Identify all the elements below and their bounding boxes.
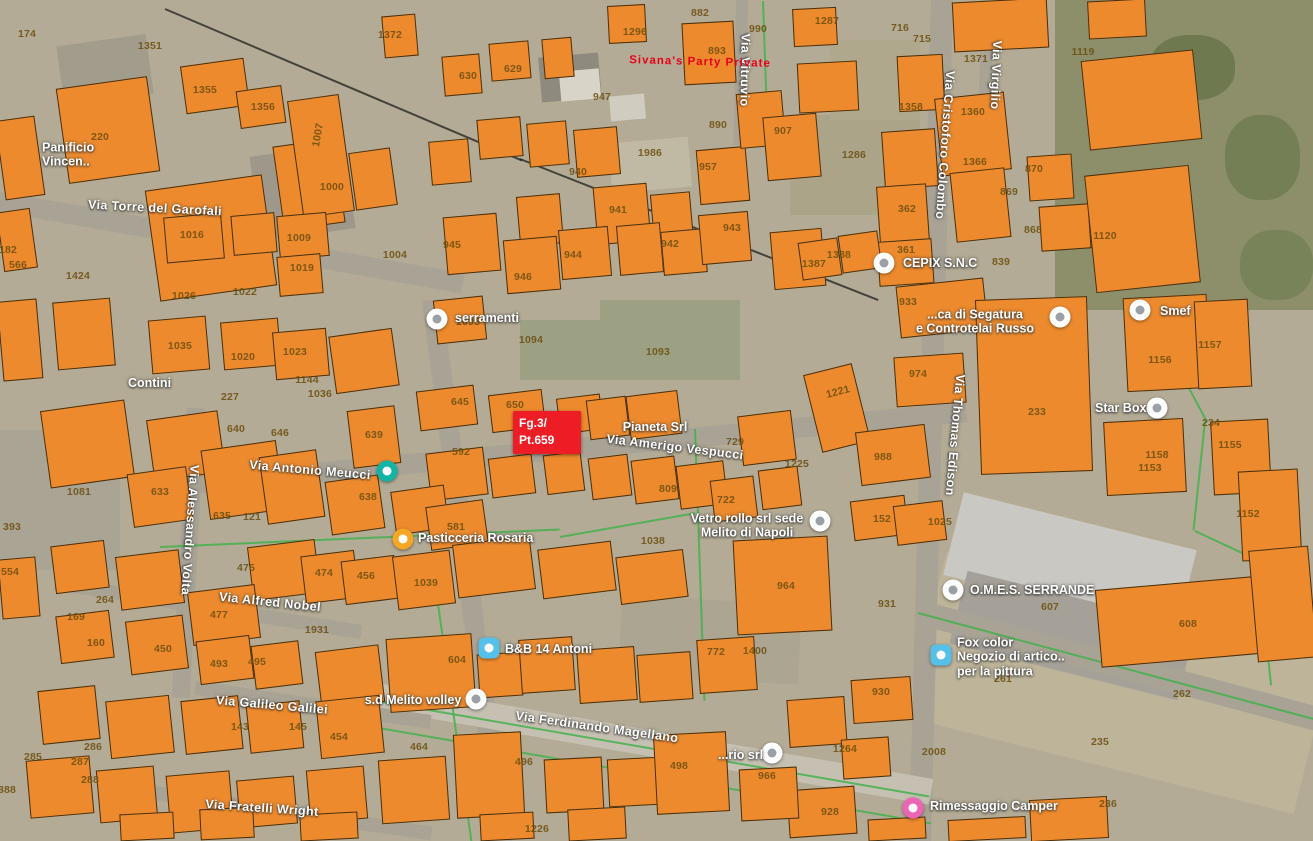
building-parcel bbox=[1026, 153, 1074, 201]
parcel-number: 715 bbox=[913, 33, 931, 45]
pin-glyph bbox=[433, 315, 442, 324]
building-parcel bbox=[0, 116, 45, 201]
building-parcel bbox=[488, 453, 537, 498]
parcel-number: 182 bbox=[0, 244, 17, 256]
parcel-number: 966 bbox=[758, 770, 776, 782]
parcel-number: 1296 bbox=[623, 26, 647, 38]
parcel-number: 882 bbox=[691, 7, 709, 19]
parcel-number: 1152 bbox=[1236, 508, 1260, 520]
parcel-number: 495 bbox=[248, 656, 266, 668]
pin-glyph bbox=[1153, 404, 1162, 413]
building-parcel bbox=[855, 424, 931, 486]
parcel-number: 893 bbox=[708, 45, 726, 57]
parcel-number: 554 bbox=[1, 566, 19, 578]
parcel-number: 890 bbox=[709, 119, 727, 131]
parcel-number: 1035 bbox=[168, 340, 192, 352]
parcel-number: 1153 bbox=[1138, 462, 1162, 474]
building-parcel bbox=[696, 146, 751, 205]
terrain-patch bbox=[1240, 230, 1313, 300]
pin-glyph bbox=[485, 644, 494, 653]
terrain-patch bbox=[520, 320, 610, 380]
parcel-number: 1039 bbox=[414, 577, 438, 589]
building-parcel bbox=[119, 812, 174, 841]
building-parcel bbox=[1095, 576, 1259, 667]
cadastral-map-canvas[interactable]: Sivana's Party Private Fg.3/ Pt.659 1741… bbox=[0, 0, 1313, 841]
building-parcel bbox=[537, 541, 617, 600]
poi-label-line: Fox color bbox=[957, 635, 1065, 649]
parcel-number: 1358 bbox=[899, 101, 923, 113]
building-parcel bbox=[949, 167, 1011, 242]
parcel-number: 943 bbox=[723, 222, 741, 234]
parcel-number: 143 bbox=[231, 721, 249, 733]
parcel-number: 493 bbox=[210, 658, 228, 670]
poi-pin-white-icon[interactable] bbox=[874, 253, 895, 274]
parcel-number: 988 bbox=[874, 451, 892, 463]
parcel-number: 477 bbox=[210, 609, 228, 621]
marker-parcel-line: Pt.659 bbox=[519, 432, 575, 449]
poi-label[interactable]: Pasticceria Rosaria bbox=[418, 531, 533, 545]
parcel-number: 287 bbox=[71, 756, 89, 768]
parcel-number: 233 bbox=[1028, 406, 1046, 418]
poi-label-line: Pasticceria Rosaria bbox=[418, 531, 533, 545]
selected-parcel-marker[interactable]: Fg.3/ Pt.659 bbox=[513, 411, 581, 454]
poi-label-line: per la pittura bbox=[957, 664, 1065, 678]
parcel-number: 629 bbox=[504, 63, 522, 75]
poi-label-line: ...ca di Segatura bbox=[916, 308, 1034, 322]
parcel-number: 1387 bbox=[802, 258, 826, 270]
parcel-number: 1009 bbox=[287, 232, 311, 244]
parcel-number: 1366 bbox=[963, 156, 987, 168]
parcel-number: 235 bbox=[1091, 736, 1109, 748]
building-parcel bbox=[230, 212, 277, 256]
poi-label[interactable]: Rimessaggio Camper bbox=[930, 799, 1058, 813]
parcel-number: 234 bbox=[1202, 417, 1220, 429]
parcel-number: 1371 bbox=[964, 53, 988, 65]
parcel-number: 1026 bbox=[172, 290, 196, 302]
parcel-number: 1093 bbox=[646, 346, 670, 358]
parcel-number: 388 bbox=[0, 784, 16, 796]
poi-label-line: O.M.E.S. SERRANDE bbox=[970, 583, 1094, 597]
building-parcel bbox=[105, 695, 175, 759]
parcel-number: 946 bbox=[514, 271, 532, 283]
pin-glyph bbox=[880, 259, 889, 268]
building-parcel bbox=[348, 147, 398, 210]
parcel-number: 361 bbox=[897, 244, 915, 256]
parcel-number: 464 bbox=[410, 741, 428, 753]
building-parcel bbox=[786, 696, 847, 748]
poi-label-line: Smef bbox=[1160, 304, 1191, 318]
parcel-number: 1023 bbox=[283, 346, 307, 358]
building-parcel bbox=[758, 466, 803, 511]
poi-pin-white-icon[interactable] bbox=[1130, 300, 1151, 321]
building-parcel bbox=[37, 685, 100, 745]
parcel-number: 1120 bbox=[1093, 230, 1117, 242]
poi-label[interactable]: Fox colorNegozio di artico..per la pittu… bbox=[957, 635, 1065, 678]
poi-label-line: e Controtelai Russo bbox=[916, 322, 1034, 336]
poi-label[interactable]: serramenti bbox=[455, 311, 519, 325]
parcel-number: 288 bbox=[81, 774, 99, 786]
poi-label[interactable]: CEPIX S.N.C bbox=[903, 256, 977, 270]
poi-label-line: Negozio di artico.. bbox=[957, 650, 1065, 664]
poi-label-line: Panificio bbox=[42, 141, 94, 155]
parcel-number: 1355 bbox=[193, 84, 217, 96]
building-parcel bbox=[797, 60, 860, 113]
parcel-number: 496 bbox=[515, 756, 533, 768]
parcel-number: 964 bbox=[777, 580, 795, 592]
parcel-number: 635 bbox=[213, 510, 231, 522]
building-parcel bbox=[453, 731, 525, 818]
parcel-number: 1025 bbox=[928, 516, 952, 528]
poi-pin-blue-icon[interactable] bbox=[931, 645, 952, 666]
parcel-number: 1000 bbox=[320, 181, 344, 193]
parcel-number: 236 bbox=[1099, 798, 1117, 810]
parcel-number: 1144 bbox=[295, 374, 319, 386]
parcel-number: 1388 bbox=[827, 249, 851, 261]
parcel-number: 604 bbox=[448, 654, 466, 666]
poi-label[interactable]: B&B 14 Antoni bbox=[505, 642, 592, 656]
parcel-number: 152 bbox=[873, 513, 891, 525]
building-parcel bbox=[698, 211, 752, 265]
parcel-number: 630 bbox=[459, 70, 477, 82]
parcel-number: 1360 bbox=[961, 106, 985, 118]
parcel-number: 1022 bbox=[233, 286, 257, 298]
parcel-number: 454 bbox=[330, 731, 348, 743]
building-parcel bbox=[503, 236, 562, 295]
parcel-number: 592 bbox=[452, 446, 470, 458]
parcel-number: 1004 bbox=[383, 249, 407, 261]
parcel-number: 809 bbox=[659, 483, 677, 495]
building-parcel bbox=[416, 385, 478, 432]
parcel-number: 974 bbox=[909, 368, 927, 380]
poi-label-line: Rimessaggio Camper bbox=[930, 799, 1058, 813]
parcel-number: 716 bbox=[891, 22, 909, 34]
parcel-number: 169 bbox=[67, 611, 85, 623]
parcel-number: 722 bbox=[717, 494, 735, 506]
poi-label[interactable]: Vetro rollo srl sedeMelito di Napoli bbox=[691, 512, 804, 541]
parcel-number: 1081 bbox=[67, 486, 91, 498]
parcel-number: 1286 bbox=[842, 149, 866, 161]
poi-label-line: CEPIX S.N.C bbox=[903, 256, 977, 270]
building-parcel bbox=[615, 549, 688, 605]
building-parcel bbox=[544, 757, 605, 814]
parcel-number: 1157 bbox=[1198, 339, 1222, 351]
parcel-number: 1094 bbox=[519, 334, 543, 346]
parcel-number: 566 bbox=[9, 259, 27, 271]
poi-pin-white-icon[interactable] bbox=[1050, 307, 1071, 328]
building-parcel bbox=[616, 222, 664, 276]
parcel-number: 1264 bbox=[833, 743, 857, 755]
building-parcel bbox=[543, 451, 586, 495]
boundary-line-green bbox=[1193, 421, 1206, 531]
poi-pin-white-icon[interactable] bbox=[810, 511, 831, 532]
poi-label[interactable]: s.d Melito volley bbox=[365, 693, 462, 707]
parcel-number: 638 bbox=[359, 491, 377, 503]
building-parcel bbox=[567, 807, 627, 841]
building-parcel bbox=[526, 120, 570, 167]
poi-label-line: Contini bbox=[128, 376, 171, 390]
parcel-number: 1038 bbox=[641, 535, 665, 547]
parcel-number: 1119 bbox=[1072, 46, 1095, 58]
poi-label-line: Pianeta Srl bbox=[623, 420, 688, 434]
building-parcel bbox=[588, 454, 633, 501]
poi-label[interactable]: Pianeta Srl bbox=[623, 420, 688, 434]
building-parcel bbox=[851, 676, 914, 724]
terrain-patch bbox=[609, 94, 646, 122]
parcel-number: 640 bbox=[227, 423, 245, 435]
street-label: Via Virgilio bbox=[988, 40, 1004, 109]
building-parcel bbox=[762, 113, 821, 181]
poi-label[interactable]: Smef bbox=[1160, 304, 1191, 318]
parcel-number: 947 bbox=[593, 91, 611, 103]
building-parcel bbox=[325, 475, 386, 536]
poi-label[interactable]: ...ca di Segaturae Controtelai Russo bbox=[916, 308, 1034, 337]
parcel-number: 1356 bbox=[251, 101, 275, 113]
pin-glyph bbox=[949, 586, 958, 595]
building-parcel bbox=[1038, 203, 1091, 251]
poi-label[interactable]: O.M.E.S. SERRANDE bbox=[970, 583, 1094, 597]
pin-glyph bbox=[472, 695, 481, 704]
parcel-number: 933 bbox=[899, 296, 917, 308]
parcel-number: 931 bbox=[878, 598, 896, 610]
poi-pin-blue-icon[interactable] bbox=[479, 638, 500, 659]
parcel-number: 121 bbox=[243, 511, 261, 523]
parcel-number: 1424 bbox=[66, 270, 90, 282]
poi-pin-white-icon[interactable] bbox=[466, 689, 487, 710]
building-parcel bbox=[867, 816, 926, 841]
building-parcel bbox=[276, 253, 323, 297]
pin-glyph bbox=[399, 535, 408, 544]
building-parcel bbox=[1081, 49, 1203, 150]
building-parcel bbox=[947, 816, 1026, 841]
poi-pin-orange-icon[interactable] bbox=[393, 529, 414, 550]
poi-label[interactable]: ...rio srl bbox=[718, 748, 763, 762]
pin-glyph bbox=[383, 467, 392, 476]
parcel-number: 1986 bbox=[638, 147, 662, 159]
parcel-number: 498 bbox=[670, 760, 688, 772]
building-parcel bbox=[50, 540, 109, 594]
building-parcel bbox=[52, 298, 116, 371]
parcel-number: 639 bbox=[365, 429, 383, 441]
parcel-number: 1226 bbox=[525, 823, 549, 835]
parcel-number: 868 bbox=[1024, 224, 1042, 236]
parcel-number: 607 bbox=[1041, 601, 1059, 613]
parcel-number: 1287 bbox=[815, 15, 839, 27]
parcel-number: 957 bbox=[699, 161, 717, 173]
parcel-number: 772 bbox=[707, 646, 725, 658]
parcel-number: 362 bbox=[898, 203, 916, 215]
parcel-number: 907 bbox=[774, 125, 792, 137]
poi-pin-white-icon[interactable] bbox=[1147, 398, 1168, 419]
parcel-number: 646 bbox=[271, 427, 289, 439]
parcel-number: 264 bbox=[96, 594, 114, 606]
parcel-number: 227 bbox=[221, 391, 239, 403]
parcel-number: 650 bbox=[506, 399, 524, 411]
building-parcel bbox=[630, 455, 679, 504]
building-parcel bbox=[328, 328, 399, 394]
parcel-number: 839 bbox=[992, 256, 1010, 268]
building-parcel bbox=[1248, 546, 1313, 663]
poi-pin-white-icon[interactable] bbox=[943, 580, 964, 601]
building-parcel bbox=[636, 651, 693, 703]
building-parcel bbox=[541, 37, 574, 79]
terrain-patch bbox=[600, 300, 740, 380]
poi-pin-white-icon[interactable] bbox=[762, 743, 783, 764]
parcel-number: 1019 bbox=[290, 262, 314, 274]
poi-label-line: serramenti bbox=[455, 311, 519, 325]
building-parcel bbox=[1087, 0, 1147, 39]
parcel-number: 285 bbox=[24, 751, 42, 763]
poi-label-line: Vetro rollo srl sede bbox=[691, 512, 804, 526]
parcel-number: 160 bbox=[87, 637, 105, 649]
parcel-number: 1225 bbox=[785, 458, 809, 470]
parcel-number: 456 bbox=[357, 570, 375, 582]
pin-glyph bbox=[909, 804, 918, 813]
parcel-number: 450 bbox=[154, 643, 172, 655]
street-label: Via Vitruvio bbox=[737, 33, 752, 106]
parcel-number: 870 bbox=[1025, 163, 1043, 175]
building-parcel bbox=[378, 756, 450, 825]
parcel-number: 174 bbox=[18, 28, 36, 40]
boundary-line-green bbox=[560, 512, 695, 538]
building-parcel bbox=[488, 40, 531, 81]
parcel-number: 1158 bbox=[1145, 449, 1169, 461]
building-parcel bbox=[476, 116, 523, 160]
building-parcel bbox=[428, 138, 472, 185]
parcel-number: 1020 bbox=[231, 351, 255, 363]
parcel-number: 1036 bbox=[308, 388, 332, 400]
parcel-number: 608 bbox=[1179, 618, 1197, 630]
parcel-number: 941 bbox=[609, 204, 627, 216]
parcel-number: 1016 bbox=[180, 229, 204, 241]
poi-label-line: Star Box bbox=[1095, 401, 1146, 415]
pin-glyph bbox=[937, 651, 946, 660]
parcel-number: 286 bbox=[84, 741, 102, 753]
building-parcel bbox=[115, 549, 185, 610]
parcel-number: 2008 bbox=[922, 746, 946, 758]
parcel-number: 145 bbox=[289, 721, 307, 733]
poi-label[interactable]: PanificioVincen.. bbox=[42, 141, 94, 170]
parcel-number: 1156 bbox=[1148, 354, 1172, 366]
parcel-number: 1400 bbox=[743, 645, 767, 657]
parcel-number: 1931 bbox=[305, 624, 329, 636]
parcel-number: 930 bbox=[872, 686, 890, 698]
poi-label-line: Melito di Napoli bbox=[691, 526, 804, 540]
parcel-number: 928 bbox=[821, 806, 839, 818]
terrain-patch bbox=[1225, 115, 1300, 200]
poi-pin-teal-icon[interactable] bbox=[377, 461, 398, 482]
parcel-number: 393 bbox=[3, 521, 21, 533]
parcel-number: 474 bbox=[315, 567, 333, 579]
parcel-number: 869 bbox=[1000, 186, 1018, 198]
poi-label-line: ...rio srl bbox=[718, 748, 763, 762]
building-parcel bbox=[40, 399, 135, 488]
parcel-number: 1155 bbox=[1218, 439, 1242, 451]
parcel-number: 645 bbox=[451, 396, 469, 408]
poi-pin-pink-icon[interactable] bbox=[903, 798, 924, 819]
parcel-number: 475 bbox=[237, 562, 255, 574]
building-parcel bbox=[881, 128, 939, 190]
poi-label-line: B&B 14 Antoni bbox=[505, 642, 592, 656]
parcel-number: 633 bbox=[151, 486, 169, 498]
parcel-number: 940 bbox=[569, 166, 587, 178]
parcel-number: 945 bbox=[443, 239, 461, 251]
parcel-number: 262 bbox=[1173, 688, 1191, 700]
pin-glyph bbox=[1136, 306, 1145, 315]
poi-label[interactable]: Star Box bbox=[1095, 401, 1146, 415]
pin-glyph bbox=[816, 517, 825, 526]
poi-label[interactable]: Contini bbox=[128, 376, 171, 390]
building-parcel bbox=[1084, 165, 1201, 293]
pin-glyph bbox=[1056, 313, 1065, 322]
parcel-number: 1372 bbox=[378, 29, 402, 41]
poi-pin-white-icon[interactable] bbox=[427, 309, 448, 330]
pin-glyph bbox=[768, 749, 777, 758]
marker-sheet-line: Fg.3/ bbox=[519, 415, 575, 432]
parcel-number: 942 bbox=[661, 238, 679, 250]
parcel-number: 944 bbox=[564, 249, 582, 261]
map-overlay-red-text: Sivana's Party Private bbox=[629, 54, 771, 70]
parcel-number: 1351 bbox=[138, 40, 162, 52]
poi-label-line: s.d Melito volley bbox=[365, 693, 462, 707]
building-parcel bbox=[0, 298, 43, 381]
poi-label-line: Vincen.. bbox=[42, 155, 94, 169]
